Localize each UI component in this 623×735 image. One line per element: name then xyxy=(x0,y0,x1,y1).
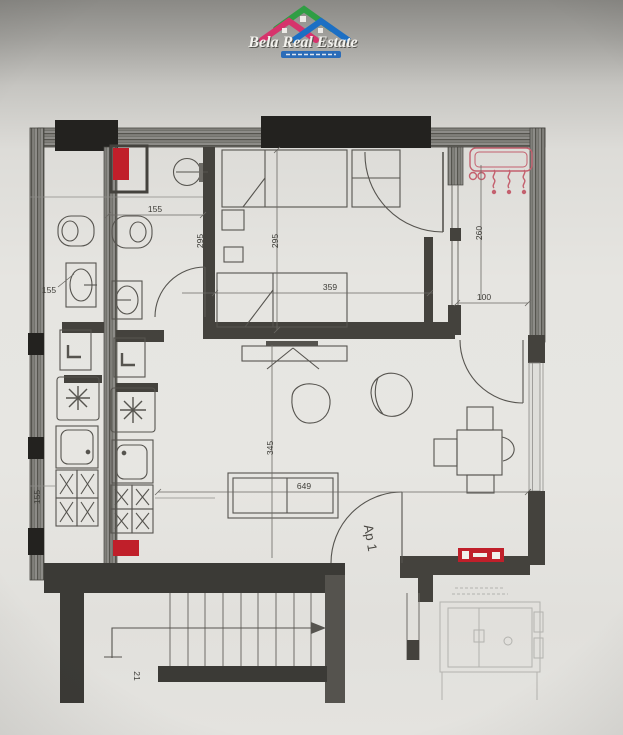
electrical-panel xyxy=(458,548,504,562)
neighbor-stove xyxy=(56,470,98,526)
east-wall-lower xyxy=(528,491,545,565)
bathroom-kitchen-wall xyxy=(116,330,164,342)
tv-stand xyxy=(242,346,347,361)
tap-column xyxy=(199,163,203,182)
sofa xyxy=(228,473,338,518)
dim-balcony-width: 100 xyxy=(477,292,491,302)
kitchen xyxy=(111,338,155,533)
living-room xyxy=(228,341,514,518)
neighbor-toilet-bowl xyxy=(62,221,78,241)
dim-bathroom-depth: 295 xyxy=(195,234,205,248)
logo-roof-window-1 xyxy=(300,16,306,22)
dim-bedroom-depth: 295 xyxy=(270,234,280,248)
bedroom-door-arc xyxy=(365,152,443,232)
bed-1-blanket-fold xyxy=(243,178,265,207)
washing-machine xyxy=(114,338,145,377)
stair-label: 21 xyxy=(132,671,142,681)
dining-chair-right xyxy=(502,437,514,461)
living-window xyxy=(529,363,540,491)
stair-treads xyxy=(170,593,311,666)
walkline-arrow xyxy=(311,622,326,634)
logo-roof-window-2 xyxy=(282,28,287,33)
shower-drain-icon xyxy=(120,397,146,423)
neighbor-washer xyxy=(60,330,91,370)
west-wall-pier-2 xyxy=(28,437,44,459)
apartment-label: Ap 1 xyxy=(361,523,380,552)
nightstand-2 xyxy=(224,247,243,262)
concrete-pier-left xyxy=(55,120,118,151)
elevator-car xyxy=(448,608,532,667)
logo-roof-window-3 xyxy=(318,28,323,33)
dim-living-depth: 345 xyxy=(265,441,275,455)
ac-unit xyxy=(470,148,533,194)
dim-balcony-depth: 260 xyxy=(474,226,484,240)
tv-stand-legs xyxy=(267,348,319,369)
dining-chair-top xyxy=(467,407,493,430)
south-wall-left xyxy=(44,563,345,593)
nightstand-1 xyxy=(222,210,244,230)
ac-drain-squiggle-2 xyxy=(508,170,510,188)
entry xyxy=(331,492,504,563)
dim-bathroom-width: 155 xyxy=(148,204,162,214)
riser-shaft-bottom xyxy=(113,540,139,556)
stair-walkline xyxy=(112,628,318,658)
elevator-shaft xyxy=(440,602,540,672)
stove xyxy=(111,485,153,533)
west-wall-pier-1 xyxy=(28,333,44,355)
balcony-column xyxy=(448,147,463,185)
balcony xyxy=(460,148,532,403)
dim-living-width: 649 xyxy=(297,481,311,491)
entry-jog-wall xyxy=(400,556,433,578)
dining-chair-bottom xyxy=(467,475,494,493)
logo: Bela Real Estate Bela Real Estate xyxy=(247,9,358,58)
neighbor-washer-mark xyxy=(68,345,81,357)
concrete-pier-center xyxy=(261,116,431,148)
neighbor-apartment-fixtures xyxy=(56,216,99,526)
neighbor-sink-drain xyxy=(86,450,90,454)
balcony-door-arc xyxy=(460,340,523,403)
elevator-door-mark-1 xyxy=(534,612,543,632)
landing-wall-stub xyxy=(407,640,419,660)
elevator-door-mark-2 xyxy=(534,638,543,658)
tv-screen xyxy=(266,341,318,346)
glazing-post-bottom xyxy=(448,305,461,335)
bedroom-hall-wall xyxy=(424,237,433,325)
elevator xyxy=(440,588,543,700)
sofa-seat xyxy=(233,478,333,513)
glazing-post xyxy=(450,228,461,241)
neighbor-sink-basin xyxy=(61,430,93,464)
toilet-bowl xyxy=(130,222,146,242)
dining-chair-left xyxy=(434,439,457,466)
dining-table xyxy=(457,430,502,475)
bed-2-blanket-fold xyxy=(245,290,273,327)
elevator-handle-mark xyxy=(504,637,512,645)
riser-shaft-top xyxy=(113,148,129,180)
stair-west-wall xyxy=(60,593,84,703)
ac-drain-squiggle-1 xyxy=(493,170,495,188)
dim-bedroom-width: 359 xyxy=(323,282,337,292)
kitchen-sink-drain xyxy=(122,451,126,455)
ac-drain-squiggle-3 xyxy=(523,170,525,188)
dim-bathroom-callout: 155 xyxy=(42,285,56,295)
kitchen-sink-basin xyxy=(117,445,147,479)
washing-machine-mark xyxy=(122,353,135,365)
neighbor-divider-wall-2 xyxy=(64,375,102,383)
neighbor-toilet xyxy=(58,216,94,246)
bathroom xyxy=(30,159,208,320)
bedroom-living-wall xyxy=(203,322,455,339)
bed-1 xyxy=(222,150,347,207)
entry-jog-wall-2 xyxy=(418,578,433,602)
west-wall-pier-3 xyxy=(28,528,44,555)
floor-plan-drawing: 155 155 155 295 295 359 260 100 345 649 … xyxy=(0,0,623,735)
stairwell xyxy=(60,575,419,703)
east-wall-upper xyxy=(528,335,545,363)
stair-east-wall xyxy=(325,575,345,703)
bedroom xyxy=(217,150,443,327)
scanned-floor-plan-photo: 155 155 155 295 295 359 260 100 345 649 … xyxy=(0,0,623,735)
stair-south-wall xyxy=(158,666,327,682)
bathroom-door-arc xyxy=(155,267,205,317)
coffee-table xyxy=(292,384,330,423)
logo-title: Bela Real Estate xyxy=(247,34,357,51)
neighbor-shower-drain-icon xyxy=(66,386,90,410)
dim-left-edge: 155 xyxy=(32,490,42,504)
neighbor-divider-wall-1 xyxy=(62,322,104,333)
